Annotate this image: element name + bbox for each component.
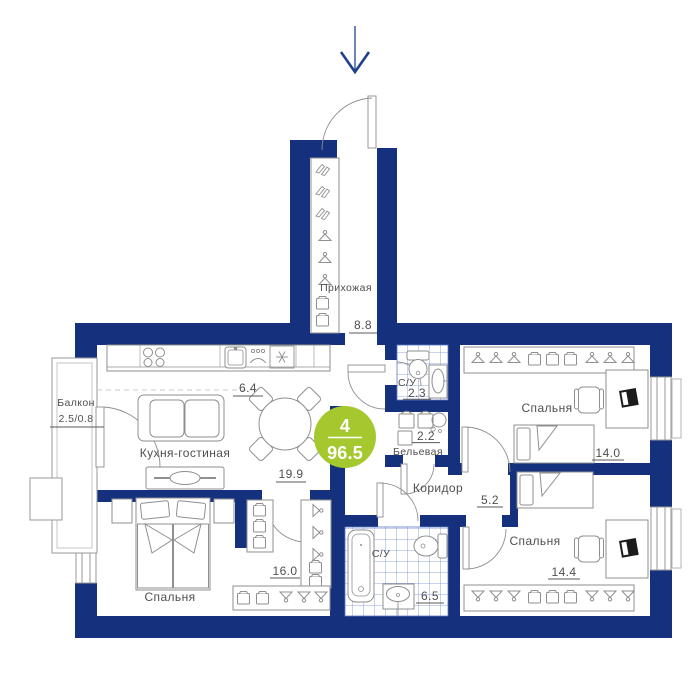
single-bed bbox=[517, 472, 593, 508]
room-bedroom-right-top: Спальня 14.0 bbox=[464, 347, 648, 463]
area-living: 19.9 bbox=[279, 467, 304, 481]
box-icon bbox=[254, 504, 266, 517]
room-label-bedroom-left: Спальня bbox=[144, 590, 195, 604]
badge-total-area: 96.5 bbox=[327, 443, 363, 463]
area-bedroom-right-top: 14.0 bbox=[596, 446, 621, 460]
badge-rooms-count: 4 bbox=[340, 416, 350, 436]
door-bedroom-right-top bbox=[462, 427, 510, 472]
box-icon bbox=[254, 520, 266, 533]
floor-plan: 6.4 Кухня-гостиная 19.9 Прихожая 8.8 bbox=[0, 0, 700, 700]
box-icon bbox=[529, 353, 541, 366]
dining-table bbox=[248, 386, 321, 461]
desk-chair bbox=[575, 387, 604, 413]
tv-stand bbox=[146, 467, 224, 489]
box-icon bbox=[565, 353, 577, 366]
single-bed bbox=[514, 425, 594, 463]
monitor-icon bbox=[619, 388, 639, 408]
box-icon bbox=[529, 591, 541, 604]
box-icon bbox=[317, 314, 329, 327]
toilet-icon bbox=[407, 351, 429, 379]
balcony-outline bbox=[30, 358, 97, 553]
room-linen: 2.2 Бельевая bbox=[393, 411, 446, 458]
toilet-icon bbox=[414, 534, 447, 558]
floor-plan-canvas: 6.4 Кухня-гостиная 19.9 Прихожая 8.8 bbox=[0, 0, 700, 700]
kitchen-counter bbox=[107, 345, 330, 371]
room-hallway: Прихожая 8.8 bbox=[311, 158, 377, 333]
box-icon bbox=[565, 591, 577, 604]
entrance-arrow bbox=[341, 26, 369, 72]
room-label-corridor: Коридор bbox=[413, 481, 463, 495]
area-balcony: 2.5/0.8 bbox=[59, 413, 94, 425]
box-icon bbox=[254, 536, 266, 549]
sofa bbox=[138, 395, 224, 441]
room-label-bedroom-right-bottom: Спальня bbox=[509, 534, 560, 548]
window-bedroom-right-top bbox=[651, 377, 681, 440]
box-icon bbox=[310, 575, 322, 588]
room-corridor: Коридор 5.2 bbox=[413, 481, 503, 507]
room-kitchen-living: 6.4 Кухня-гостиная 19.9 bbox=[97, 345, 330, 489]
room-label-kitchen-living: Кухня-гостиная bbox=[140, 446, 231, 460]
washbasin-icon bbox=[429, 365, 447, 398]
box-icon bbox=[547, 353, 559, 366]
monitor-icon bbox=[619, 538, 639, 558]
area-hallway: 8.8 bbox=[354, 318, 372, 332]
box-icon bbox=[317, 297, 329, 310]
double-bed bbox=[136, 498, 210, 590]
area-dining: 6.4 bbox=[239, 381, 257, 395]
box-icon bbox=[238, 592, 250, 605]
room-label-linen: Бельевая bbox=[393, 446, 443, 458]
area-bedroom-right-bottom: 14.4 bbox=[552, 565, 577, 579]
room-label-balcony: Балкон bbox=[57, 397, 95, 409]
kitchen-sink-icon bbox=[225, 347, 246, 368]
desk-chair bbox=[575, 536, 604, 562]
room-label-hallway: Прихожая bbox=[320, 282, 372, 294]
room-label-bedroom-right-top: Спальня bbox=[521, 401, 572, 415]
box-icon bbox=[257, 592, 269, 605]
bathtub-icon bbox=[348, 530, 374, 602]
area-linen: 2.2 bbox=[417, 429, 435, 443]
door-bathroom-bottom bbox=[377, 483, 418, 521]
area-bathroom-bottom: 6.5 bbox=[421, 589, 439, 603]
door-bedroom-right-bottom bbox=[463, 527, 506, 569]
area-bathroom-top: 2.3 bbox=[408, 386, 426, 400]
area-bedroom-left: 16.0 bbox=[273, 564, 298, 578]
room-bedroom-left: Спальня 16.0 bbox=[112, 498, 331, 610]
window-bedroom-right-bottom bbox=[651, 507, 681, 570]
room-label-bathroom-bottom: С/У bbox=[372, 548, 390, 560]
door-hall-living bbox=[348, 365, 385, 409]
box-icon bbox=[310, 561, 322, 574]
area-badge: 4 96.5 bbox=[314, 406, 376, 468]
area-corridor: 5.2 bbox=[481, 493, 499, 507]
box-icon bbox=[547, 591, 559, 604]
